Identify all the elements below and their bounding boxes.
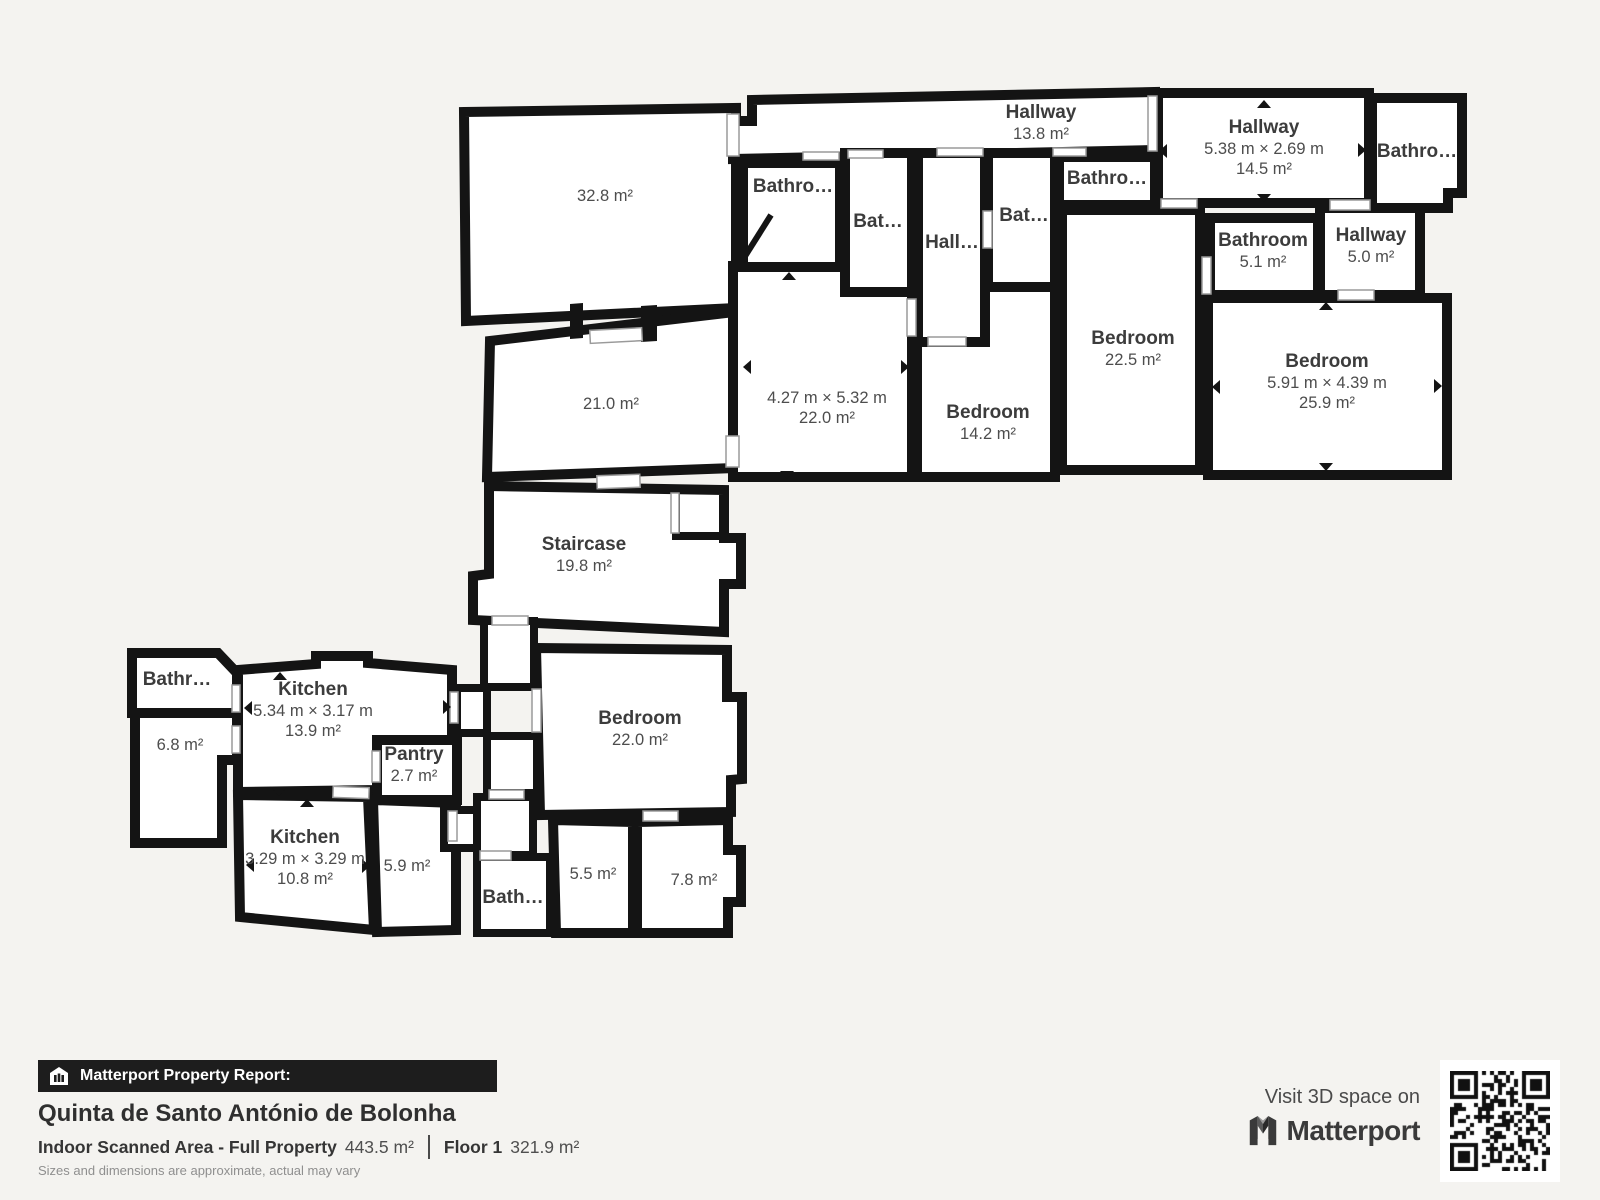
door-opening: [1330, 200, 1370, 210]
visit-3d-block: Visit 3D space on Matterport: [1248, 1086, 1420, 1147]
room-shape-32-8: [464, 108, 736, 321]
house-icon: [50, 1067, 68, 1085]
door-opening: [928, 337, 966, 346]
door-opening: [671, 493, 679, 533]
door-opening: [643, 811, 678, 821]
room-shape-bathroom-l3: [988, 153, 1055, 287]
door-opening: [1161, 199, 1197, 208]
scan-area-value: 443.5 m²: [345, 1137, 414, 1158]
floorplan: [0, 0, 1600, 1200]
door-opening: [232, 726, 240, 753]
room-shape-bathr-tl: [132, 653, 237, 713]
room-shape-staircase: [473, 486, 741, 632]
door-opening: [489, 790, 524, 799]
door-opening: [480, 851, 511, 860]
room-shape-bathroom-l2: [845, 153, 912, 292]
room-shape-hall-center: [918, 153, 985, 342]
room-shape-kitchen-10-8: [238, 795, 374, 930]
property-title: Quinta de Santo António de Bolonha: [38, 1100, 456, 1128]
divider: [428, 1135, 430, 1159]
room-shape-bedroom-25-9: [1208, 298, 1447, 475]
room-shape-5-5: [553, 820, 633, 933]
room-shape-bathroom-tr: [1372, 98, 1462, 208]
room-shape-hallway-14-5: [1158, 93, 1369, 203]
door-opening: [983, 211, 992, 248]
area-summary: Indoor Scanned Area - Full Property 443.…: [38, 1135, 579, 1159]
scan-area-label: Indoor Scanned Area - Full Property: [38, 1137, 337, 1158]
matterport-wordmark: Matterport: [1287, 1115, 1420, 1147]
door-opening: [590, 328, 643, 344]
door-opening: [532, 689, 541, 732]
room-shape-bedroom-center: [733, 266, 912, 477]
room-shape-bath-bottom: [477, 857, 550, 933]
door-opening: [937, 148, 983, 156]
door-opening: [848, 150, 883, 158]
closet-cell: [484, 621, 534, 687]
closet-cell: [457, 688, 487, 733]
door-opening: [492, 616, 528, 625]
qr-code-pattern: [1450, 1071, 1550, 1171]
room-shape-bathroom-5-1: [1210, 218, 1318, 295]
closet-cell: [477, 797, 533, 855]
door-opening: [907, 299, 916, 336]
door-opening: [1148, 96, 1157, 151]
room-shape-7-8: [637, 820, 741, 933]
door-opening: [597, 474, 640, 488]
closet-cell: [487, 736, 537, 793]
qr-code: [1440, 1060, 1560, 1182]
door-opening: [372, 751, 380, 782]
floor-label: Floor 1: [444, 1137, 502, 1158]
room-shape-bedroom-22-5: [1062, 210, 1200, 470]
report-bar-label: Matterport Property Report:: [80, 1067, 291, 1085]
door-opening: [1053, 148, 1086, 156]
report-bar: Matterport Property Report:: [38, 1060, 497, 1092]
visit-3d-text: Visit 3D space on: [1248, 1086, 1420, 1109]
floor-value: 321.9 m²: [510, 1137, 579, 1158]
room-shape-bedroom-22-0: [536, 648, 742, 815]
door-opening: [803, 152, 839, 160]
door-opening: [726, 436, 739, 467]
door-opening: [450, 692, 458, 723]
room-shape-bathroom-mid: [1059, 157, 1155, 205]
room-shape-bathroom-l1: [743, 163, 840, 267]
door-opening: [1202, 257, 1211, 294]
door-opening: [448, 811, 457, 841]
room-shape-6-8: [135, 713, 237, 843]
room-shape-pantry: [377, 740, 457, 800]
wall-stub: [570, 303, 583, 339]
room-shape-hallway-5-0: [1320, 208, 1420, 295]
door-opening: [1338, 290, 1374, 300]
matterport-floorplan-report: 32.8 m²21.0 m²Staircase19.8 m²Hallway13.…: [0, 0, 1600, 1200]
door-opening: [333, 786, 369, 798]
wall-stub: [641, 305, 657, 342]
door-opening: [232, 685, 240, 712]
door-opening: [727, 114, 739, 156]
disclaimer: Sizes and dimensions are approximate, ac…: [38, 1163, 360, 1178]
matterport-logo-icon: [1248, 1116, 1278, 1146]
